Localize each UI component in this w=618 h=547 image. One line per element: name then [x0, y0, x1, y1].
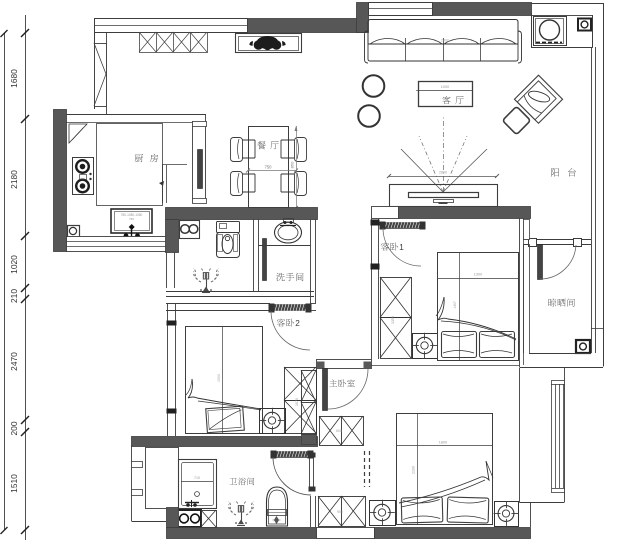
svg-text:850: 850 — [290, 161, 295, 168]
svg-text:900: 900 — [337, 510, 343, 514]
svg-text:1000: 1000 — [441, 85, 449, 89]
svg-text:1467: 1467 — [453, 301, 457, 309]
svg-text:1350: 1350 — [391, 316, 395, 324]
svg-text:210: 210 — [9, 289, 19, 303]
svg-text:2180: 2180 — [9, 170, 19, 189]
svg-text:710: 710 — [194, 476, 200, 480]
svg-text:600: 600 — [336, 429, 342, 433]
svg-text:2800: 2800 — [439, 171, 447, 175]
svg-text:1300: 1300 — [474, 273, 482, 277]
svg-text:1680: 1680 — [9, 69, 19, 88]
svg-text:1500: 1500 — [217, 374, 221, 382]
svg-text:1020: 1020 — [9, 255, 19, 274]
svg-text:200: 200 — [9, 421, 19, 435]
svg-text:750: 750 — [129, 217, 134, 221]
svg-text:2470: 2470 — [9, 352, 19, 371]
svg-text:1510: 1510 — [9, 474, 19, 493]
svg-text:750: 750 — [265, 165, 273, 170]
svg-text:2: 2 — [295, 319, 300, 328]
svg-text:1: 1 — [399, 243, 404, 252]
svg-text:1800: 1800 — [439, 441, 447, 445]
svg-text:1070: 1070 — [295, 398, 299, 406]
svg-text:2100: 2100 — [412, 466, 416, 474]
svg-text:2400: 2400 — [441, 39, 449, 43]
